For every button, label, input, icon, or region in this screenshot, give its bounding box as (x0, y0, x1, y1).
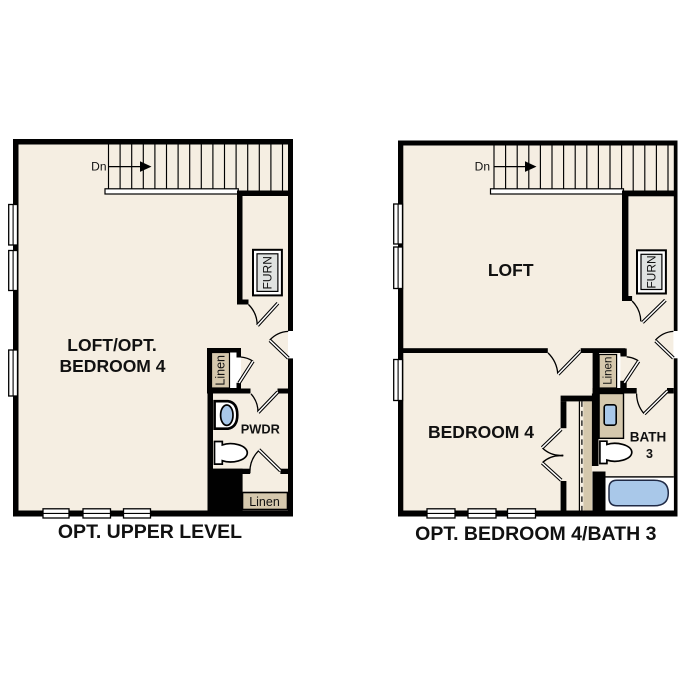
svg-text:BEDROOM 4: BEDROOM 4 (60, 356, 166, 376)
svg-text:PWDR: PWDR (241, 422, 280, 437)
svg-text:BEDROOM 4: BEDROOM 4 (428, 422, 534, 442)
svg-text:FURN: FURN (261, 256, 275, 289)
svg-text:Dn: Dn (91, 160, 106, 174)
svg-text:FURN: FURN (645, 255, 659, 288)
svg-text:Dn: Dn (475, 160, 490, 174)
svg-text:LOFT/OPT.: LOFT/OPT. (67, 335, 156, 355)
svg-text:OPT. BEDROOM 4/BATH 3: OPT. BEDROOM 4/BATH 3 (415, 523, 656, 545)
svg-text:Linen: Linen (249, 495, 280, 509)
svg-text:Linen: Linen (602, 357, 614, 385)
svg-text:BATH: BATH (630, 429, 667, 444)
svg-text:OPT. UPPER LEVEL: OPT. UPPER LEVEL (58, 521, 242, 543)
svg-text:LOFT: LOFT (488, 260, 534, 280)
svg-text:3: 3 (646, 447, 653, 461)
svg-text:Linen: Linen (214, 355, 228, 386)
